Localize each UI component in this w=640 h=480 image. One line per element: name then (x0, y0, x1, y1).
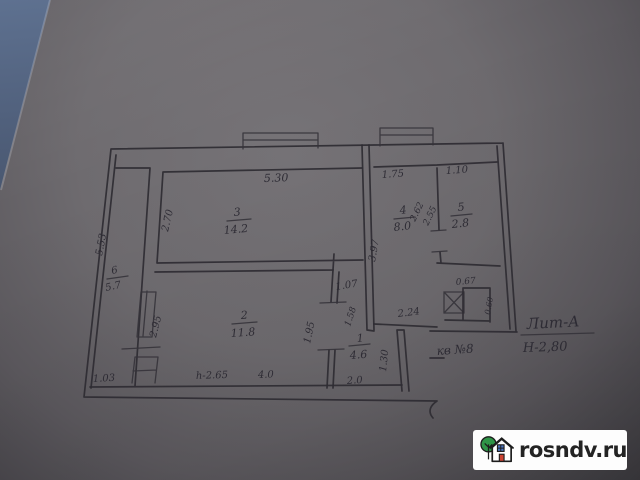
room4-room5-walls (374, 162, 500, 327)
note-building-height: Н-2,80 (522, 339, 568, 356)
room4-area: 8.0 (393, 219, 412, 234)
dim-door-room3: 1.07 (335, 279, 359, 293)
door-opening-ticks (431, 230, 447, 252)
dim-room2-height: 2.95 (148, 314, 164, 339)
dim-corridor6-length: 5.53 (94, 233, 109, 257)
dim-hall-right-wall: 1.30 (378, 348, 391, 372)
room3-walls (155, 168, 363, 272)
dim-wall-segment: 1.58 (343, 306, 359, 328)
kitchen-partition-wall (362, 145, 374, 331)
room2-number: 2 (239, 309, 248, 323)
room3-number: 3 (233, 205, 241, 219)
dim-room4-width: 1.75 (381, 168, 404, 181)
watermark-site-text: rosndv.ru (519, 438, 627, 462)
room1-number: 1 (356, 332, 364, 345)
room2-door-ticks (318, 302, 346, 350)
room5-area: 2.8 (450, 216, 470, 231)
dim-room5-width: 1.10 (445, 164, 469, 177)
door-icon (499, 454, 504, 461)
room5-number: 5 (457, 200, 465, 214)
vent-shaft-icon (444, 292, 464, 313)
niche-walls (430, 288, 517, 332)
dim-room4-bottom: 2.24 (396, 306, 420, 320)
dim-room2-width: 4.0 (257, 369, 275, 381)
dim-niche-width: 0.67 (455, 276, 476, 288)
dim-niche-depth: 0.60 (483, 296, 495, 315)
dim-room4-height: 3.97 (367, 238, 382, 262)
room2-area: 11.8 (230, 325, 255, 340)
note-apartment: кв №8 (436, 341, 474, 358)
hall-walls (397, 330, 444, 391)
dim-room3-width: 5.30 (264, 171, 289, 185)
room3-area: 14.2 (223, 222, 249, 237)
watermark-badge: rosndv.ru (473, 430, 627, 470)
dim-room2-note: h-2.65 (196, 370, 228, 382)
dim-room2-right-wall: 1.95 (302, 321, 317, 345)
room1-area: 4.6 (348, 348, 367, 362)
dim-room3-height: 2.70 (160, 208, 176, 234)
room4-number: 4 (398, 203, 407, 217)
house-with-tree-icon (480, 434, 514, 466)
room6-number: 6 (110, 265, 119, 277)
room6-area: 5.7 (104, 280, 122, 294)
dim-corridor6-bottom: 1.03 (93, 373, 116, 385)
dim-hall-width: 2.0 (345, 375, 363, 387)
floor-plan-drawing: 5.30 1.75 1.10 2.70 5.53 3.97 2.62 2.55 … (0, 0, 640, 480)
note-liter: Лит-А (525, 312, 580, 333)
